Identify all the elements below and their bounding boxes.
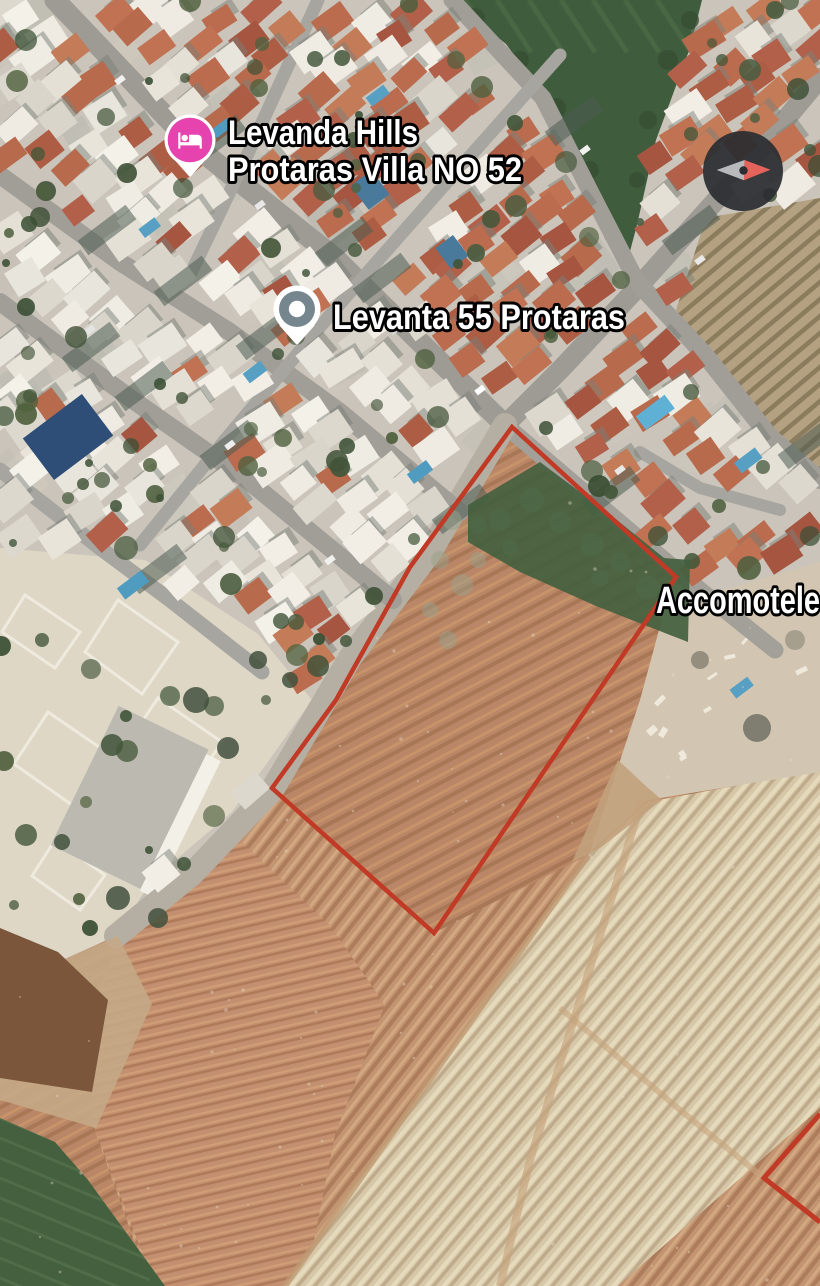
svg-text:Levanda Hills: Levanda Hills — [228, 114, 418, 152]
svg-text:Levanta 55 Protaras: Levanta 55 Protaras — [333, 298, 625, 337]
svg-text:Protaras Villa NO 52: Protaras Villa NO 52 — [228, 151, 522, 189]
svg-text:Accomotele: Accomotele — [656, 580, 820, 622]
